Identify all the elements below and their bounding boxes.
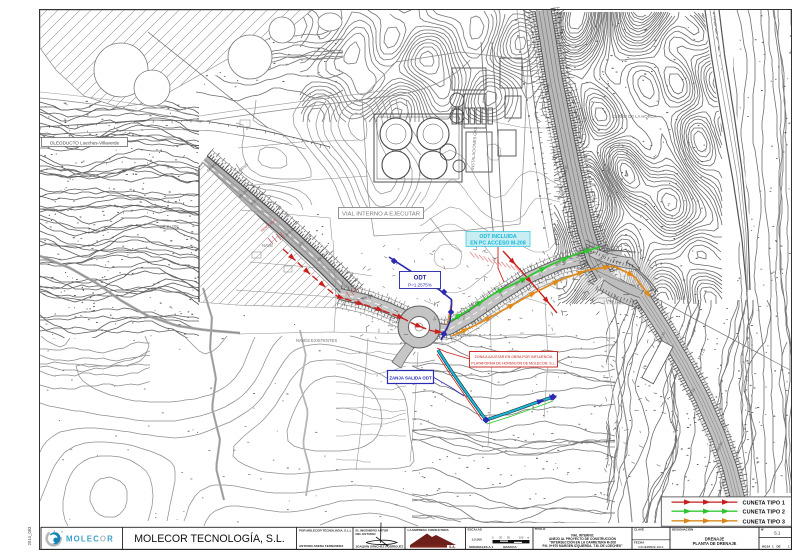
svg-text:2014_083: 2014_083 [27,526,32,545]
svg-text:MOLECOR: MOLECOR [66,534,114,543]
svg-text:100: 100 [519,536,524,540]
svg-text:ODT: ODT [414,276,427,282]
svg-text:ZONA A AJUSTAR EN OBRA POR INF: ZONA A AJUSTAR EN OBRA POR INFLUENCIA [475,355,553,359]
svg-text:DE: DE [777,545,781,549]
svg-text:OLEODUCTO Loeches-Villaverde: OLEODUCTO Loeches-Villaverde [50,140,120,145]
svg-text:PLATAFORMA DE HORMIGÓN DE MOLE: PLATAFORMA DE HORMIGÓN DE MOLECOR, S.L. [471,361,555,366]
svg-text:1:2.500: 1:2.500 [472,537,483,541]
svg-text:CERRO DE LA HORCA: CERRO DE LA HORCA [612,114,657,119]
svg-text:DICIEMBRE 2014: DICIEMBRE 2014 [639,545,664,549]
svg-text:P.K. 0+970 MARGEN IZQUIERDA. T: P.K. 0+970 MARGEN IZQUIERDA. T.M. DE LOE… [542,544,622,548]
svg-text:VIAL INTERNO A EJECUTAR: VIAL INTERNO A EJECUTAR [342,211,420,217]
svg-text:ESCALAS: ESCALAS [468,528,482,532]
svg-text:P=1.2575%: P=1.2575% [408,283,432,288]
svg-text:MOLECOR TECNOLOGÍA, S.L.: MOLECOR TECNOLOGÍA, S.L. [134,532,285,545]
svg-text:NAVE: NAVE [262,243,273,248]
svg-text:p.k.2+200: p.k.2+200 [160,224,179,229]
svg-text:CLAVE: CLAVE [634,528,644,532]
svg-text:DEL ESTUDIO: DEL ESTUDIO [356,532,377,536]
svg-text:TITULO: TITULO [535,527,546,531]
svg-text:CUNETA TIPO 3: CUNETA TIPO 3 [743,519,786,525]
svg-text:CUNETA TIPO 2: CUNETA TIPO 2 [743,510,786,516]
svg-text:ZANJA SALIDA ODT: ZANJA SALIDA ODT [389,375,432,380]
svg-text:EN PC ACCESO M-208: EN PC ACCESO M-208 [470,241,526,247]
svg-text:LA EMPRESA CONSULTORA: LA EMPRESA CONSULTORA [408,528,450,532]
svg-text:DESIGNACIÓN: DESIGNACIÓN [672,527,693,532]
svg-text:ANTONIO ARENA FERNANDEZ: ANTONIO ARENA FERNANDEZ [299,544,344,548]
svg-text:FECHA: FECHA [634,540,645,544]
svg-text:GRAFICA: GRAFICA [503,545,517,549]
svg-text:HOJA: HOJA [762,545,771,549]
svg-text:S.1: S.1 [774,531,781,536]
svg-text:NAVES EXISTENTES: NAVES EXISTENTES [296,338,337,343]
svg-text:CUNETA TIPO 1: CUNETA TIPO 1 [743,501,786,507]
svg-text:ORIGINALES A-1: ORIGINALES A-1 [469,545,494,549]
svg-text:PLANTA DE DRENAJE: PLANTA DE DRENAJE [693,541,737,546]
svg-text:ODT INCLUIDA: ODT INCLUIDA [479,234,516,240]
svg-text:m: m [527,537,529,540]
svg-text:POR MOLECOR TECNOLOGIA, S.L.L: POR MOLECOR TECNOLOGIA, S.L.L [299,529,352,533]
svg-text:S.A.: S.A. [449,545,456,549]
